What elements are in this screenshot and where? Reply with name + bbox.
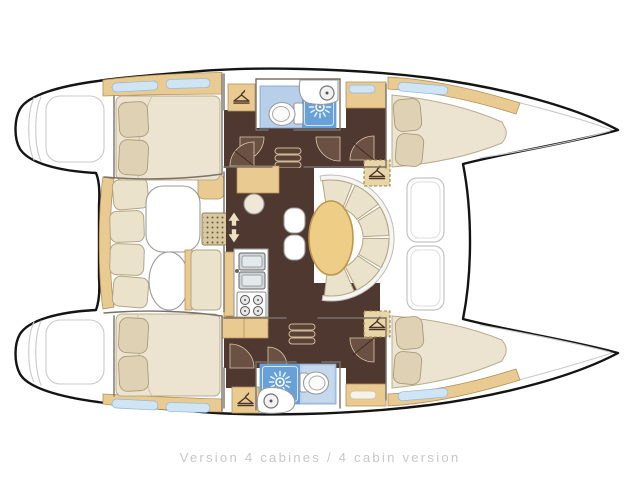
cabinet-port-forward [346,82,386,108]
cockpit-bench2-cushion [191,250,221,310]
cabin-aft-port [103,73,222,181]
companionway-steps-starboard [286,320,318,348]
entrance-mat [202,213,227,245]
floor-plan-canvas: Version 4 cabines / 4 cabin version [0,0,640,480]
companionway-steps-port [272,145,304,168]
pillow [393,98,423,132]
pillow [118,101,149,137]
galley-lower-counter [222,317,268,338]
cabinet-starboard-forward [346,384,386,406]
bathroom-port [260,80,338,128]
pillow [118,139,149,175]
caption: Version 4 cabines / 4 cabin version [180,450,461,465]
pillow [118,355,149,391]
cockpit-table [146,186,200,252]
pillow [393,351,423,385]
hull-window-icon [112,81,158,92]
four-burner-stove-icon [237,292,266,319]
cockpit-seat-oval [149,252,189,310]
toilet-icon [300,372,329,394]
hull-window-icon [166,402,210,412]
toilet-icon [269,103,303,126]
hull-window-icon [112,399,158,410]
pillow [395,316,425,350]
pillow [395,133,425,167]
catamaran-floor-plan: Version 4 cabines / 4 cabin version [0,0,640,480]
hull-window-icon [350,391,376,399]
pillow [118,317,149,353]
saloon-bench [284,235,305,260]
deck-hatch [407,178,444,242]
cockpit [99,174,227,310]
chart-table [237,166,279,193]
saloon-table [309,201,353,275]
wardrobe-starboard-aft [232,387,259,413]
hull-window-icon [349,85,375,93]
deck-hatch [407,246,444,310]
chart-table-stool [244,194,264,214]
wardrobe-port-aft [228,84,255,111]
saloon-bench [284,208,305,233]
hull-window-icon [166,78,210,88]
